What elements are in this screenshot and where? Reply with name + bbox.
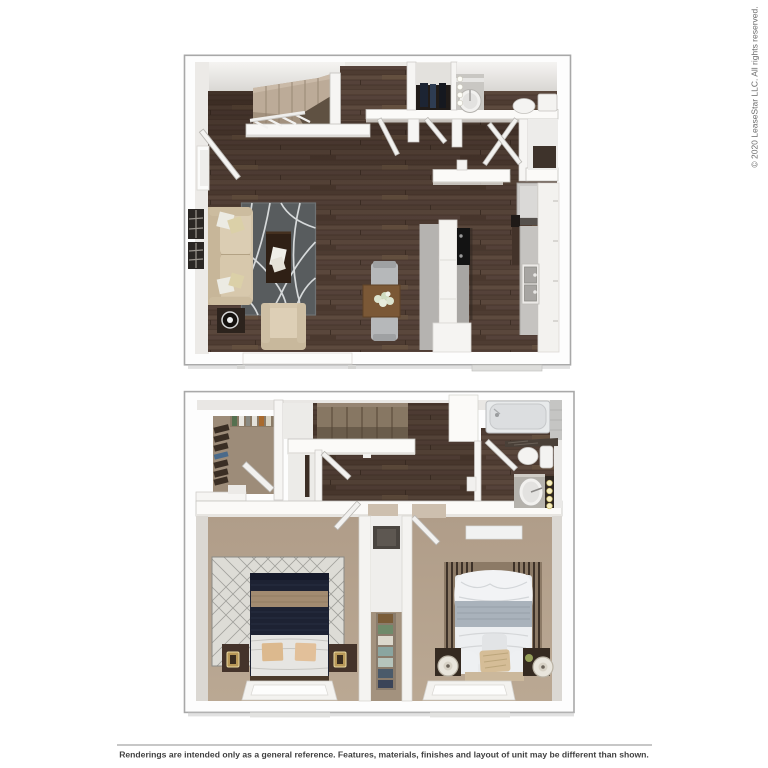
svg-text:Renderings are intended only a: Renderings are intended only as a genera… [119,750,649,760]
svg-text:© 2020 LeaseStar LLC. All righ: © 2020 LeaseStar LLC. All rights reserve… [750,6,760,167]
